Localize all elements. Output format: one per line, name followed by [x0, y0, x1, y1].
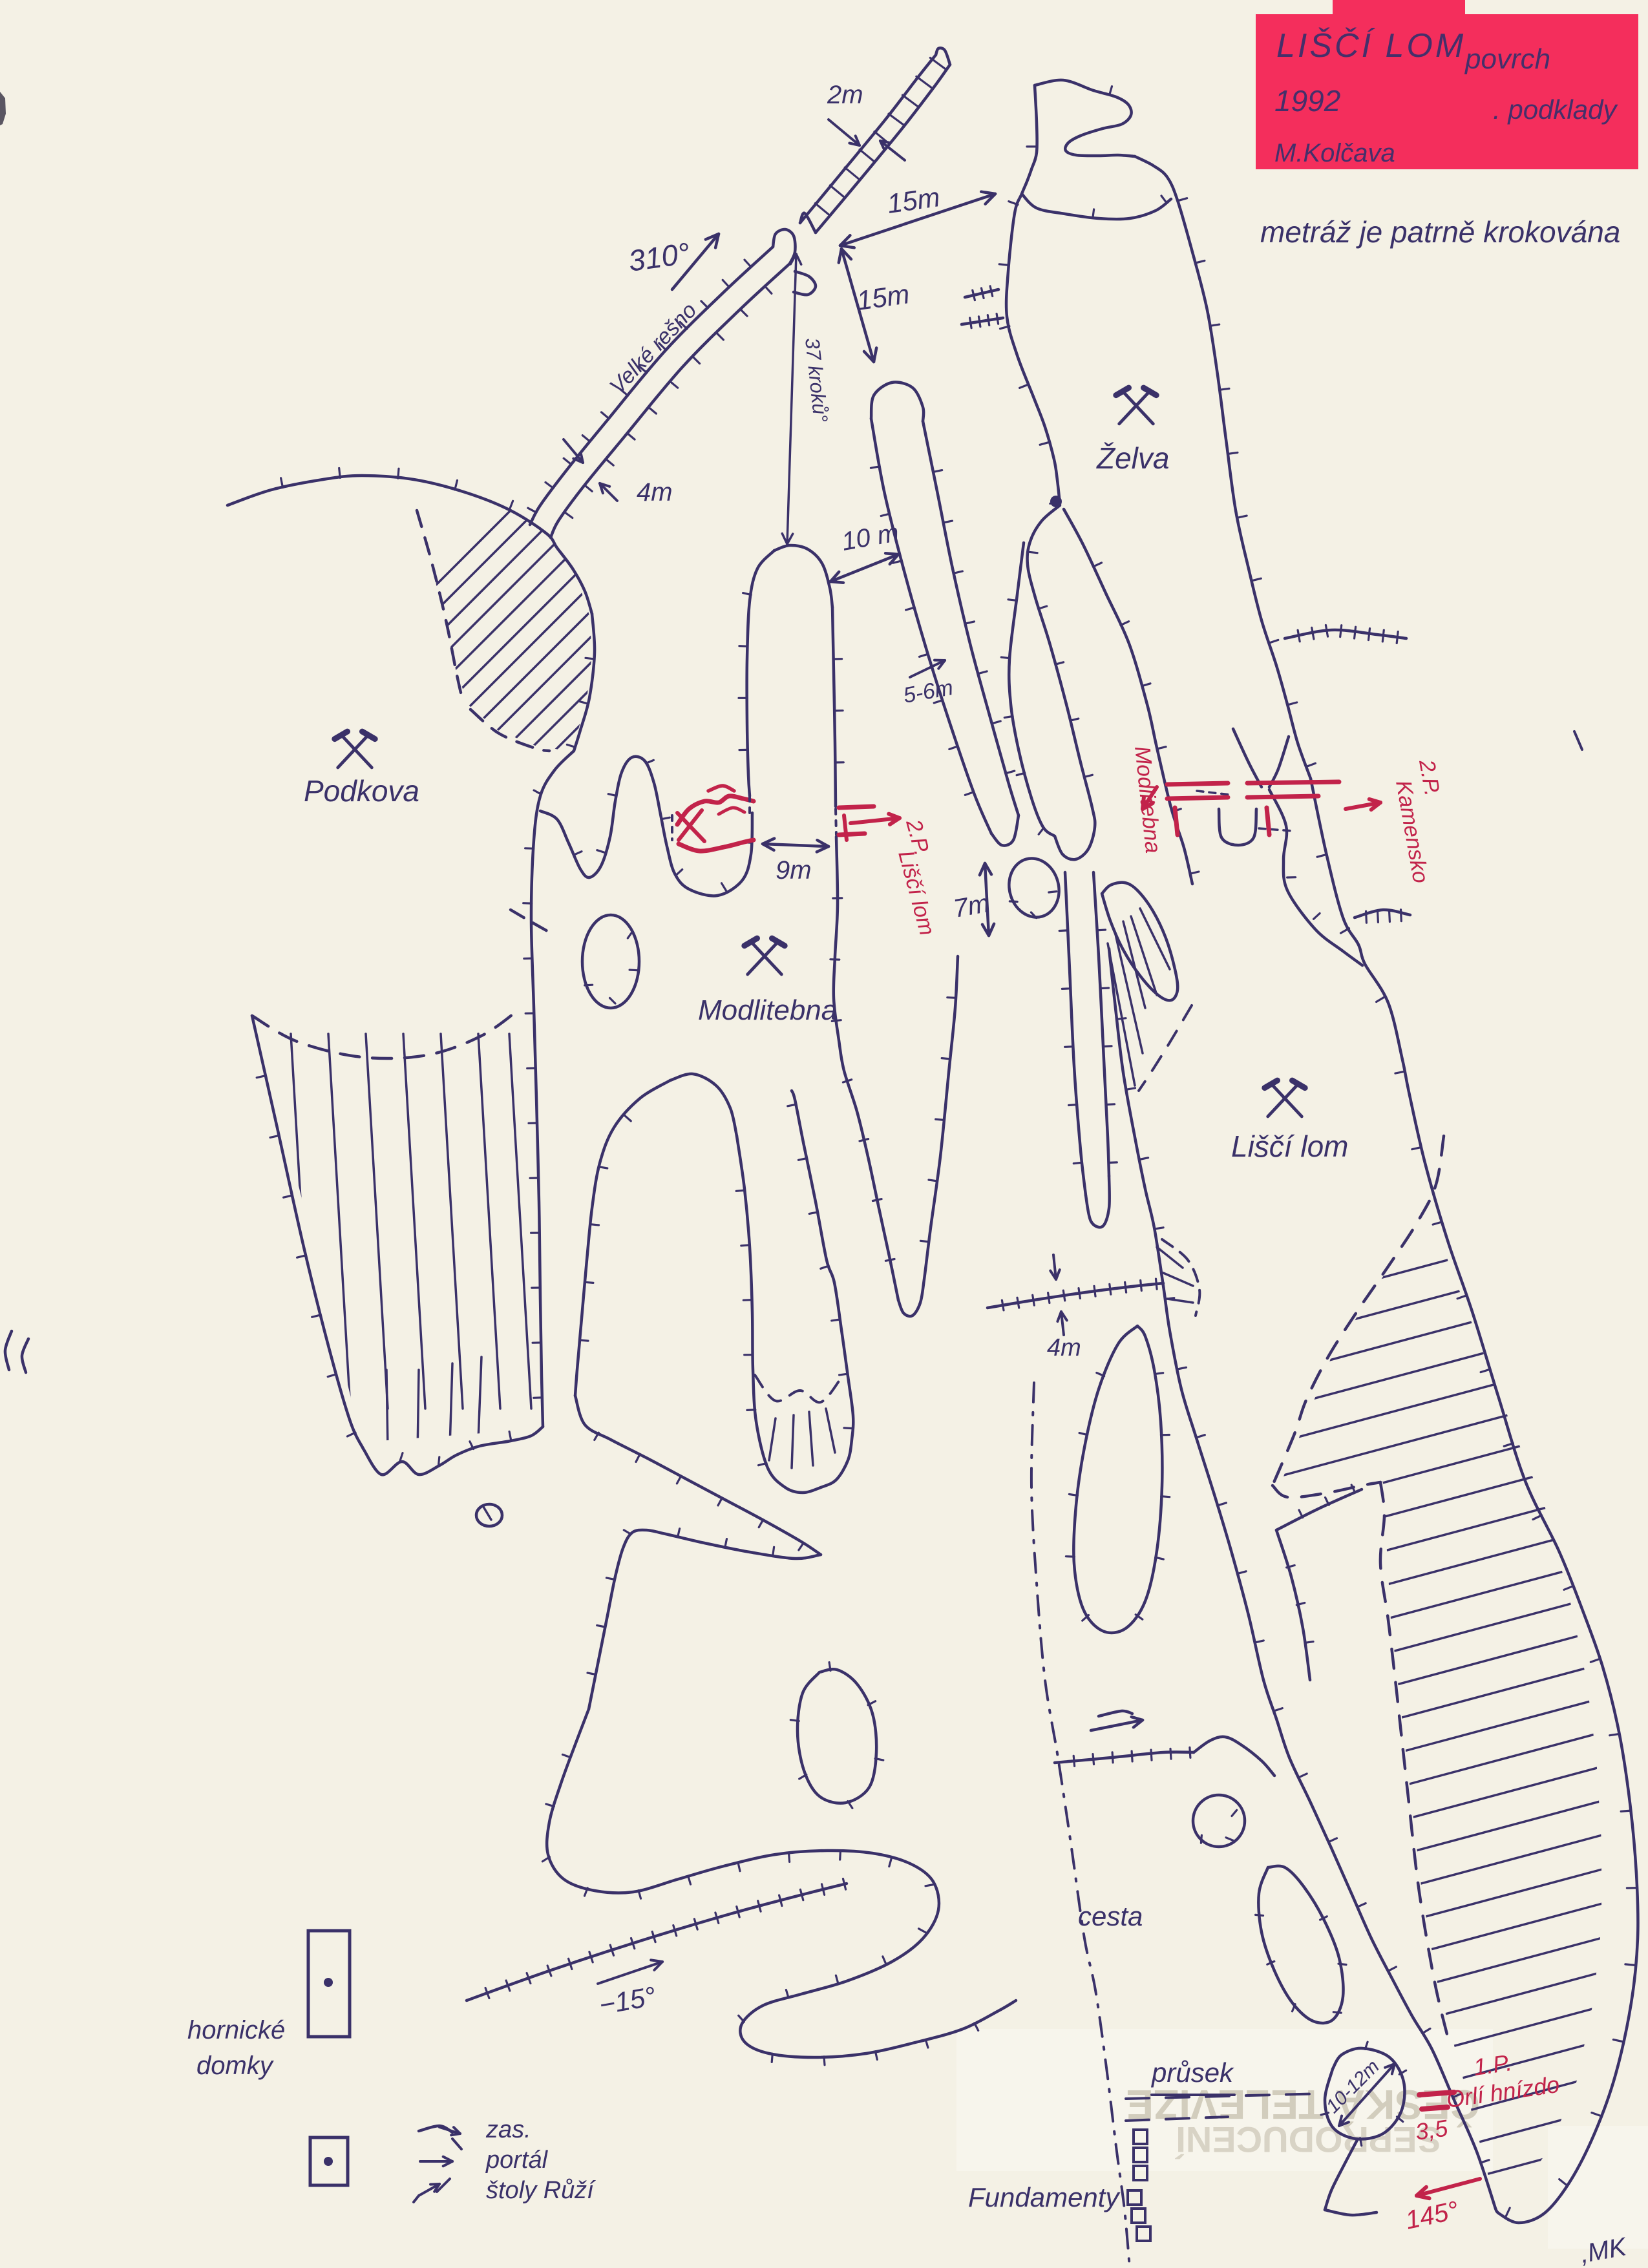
svg-text:M.Kolčava: M.Kolčava: [1274, 139, 1395, 167]
svg-text:zas.: zas.: [485, 2116, 531, 2143]
svg-text:. podklady: . podklady: [1493, 94, 1618, 125]
svg-text:metráž je patrně krokována: metráž je patrně krokována: [1260, 215, 1620, 249]
svg-text:Podkova: Podkova: [304, 774, 419, 808]
svg-text:Fundamenty: Fundamenty: [968, 2182, 1121, 2212]
svg-text:hornické: hornické: [187, 2016, 285, 2044]
svg-text:cesta: cesta: [1078, 1901, 1143, 1931]
svg-text:štoly Růží: štoly Růží: [486, 2177, 596, 2204]
svg-text:Želva: Želva: [1096, 441, 1169, 475]
svg-text:9m: 9m: [776, 856, 812, 885]
svg-text:1992: 1992: [1274, 84, 1340, 118]
svg-text:portál: portál: [485, 2147, 549, 2174]
svg-text:1.P.: 1.P.: [1472, 2049, 1514, 2081]
svg-text:4m: 4m: [1047, 1334, 1081, 1361]
svg-text:LIŠČÍ LOM: LIŠČÍ LOM: [1276, 27, 1466, 65]
svg-text:domky: domky: [196, 2052, 275, 2080]
svg-text:SEPRODUCENÍ: SEPRODUCENÍ: [1175, 2119, 1441, 2160]
svg-text:Liščí lom: Liščí lom: [1231, 1129, 1348, 1163]
svg-text:průsek: průsek: [1150, 2057, 1234, 2088]
svg-text:povrch: povrch: [1464, 43, 1550, 75]
svg-text:4m: 4m: [637, 478, 673, 507]
svg-text:2m: 2m: [827, 81, 863, 109]
svg-text:3,5: 3,5: [1413, 2114, 1450, 2145]
svg-text:Modlitebna: Modlitebna: [698, 994, 837, 1026]
